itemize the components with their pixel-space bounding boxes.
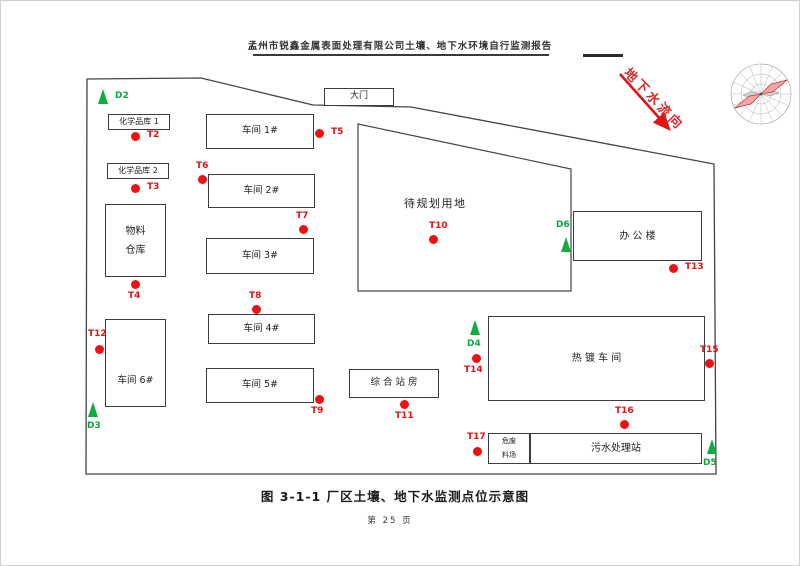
building-label-main-gate: 大门 <box>350 88 368 105</box>
building-label-office-building: 办 公 楼 <box>619 227 655 246</box>
soil-point-label-T13: T13 <box>685 262 704 272</box>
soil-point-dot-T9 <box>315 395 324 404</box>
soil-point-dot-T2 <box>131 132 140 141</box>
building-office-building: 办 公 楼 <box>573 211 702 261</box>
groundwater-point-triangle-icon-D2 <box>98 89 108 104</box>
soil-point-dot-T6 <box>198 175 207 184</box>
soil-point-dot-T15 <box>705 359 714 368</box>
report-page: 孟州市锐鑫金属表面处理有限公司土壤、地下水环境自行监测报告 <box>0 0 800 566</box>
building-label-chem-store-2: 化学品库 2 <box>118 163 158 178</box>
building-workshop-1: 车间 1# <box>206 114 314 149</box>
soil-point-label-T15: T15 <box>700 345 719 355</box>
building-workshop-6: 车间 6# <box>105 319 166 407</box>
soil-point-label-T10: T10 <box>429 221 448 231</box>
groundwater-point-label-D5: D5 <box>703 458 717 468</box>
building-composite-station: 综 合 站 房 <box>349 369 439 398</box>
building-sewage-treatment-station: 污水处理站 <box>530 433 702 464</box>
building-chem-store-2: 化学品库 2 <box>107 163 169 179</box>
soil-point-label-T4: T4 <box>128 291 140 301</box>
building-label-workshop-5: 车间 5# <box>242 376 278 394</box>
building-label-workshop-6: 车间 6# <box>117 372 153 390</box>
groundwater-point-label-D6: D6 <box>556 220 570 230</box>
soil-point-label-T2: T2 <box>147 130 159 140</box>
soil-point-label-T17: T17 <box>467 432 486 442</box>
building-label-workshop-1: 车间 1# <box>242 122 278 140</box>
planned-area-label: 待规划用地 <box>404 195 467 211</box>
soil-point-label-T5: T5 <box>331 127 343 137</box>
building-label-hazardous-waste-yard: 危废 料场 <box>502 435 516 462</box>
soil-point-dot-T12 <box>95 345 104 354</box>
building-label-workshop-2: 车间 2# <box>243 182 279 200</box>
soil-point-label-T7: T7 <box>296 211 308 221</box>
soil-point-dot-T3 <box>131 184 140 193</box>
wind-rose-icon <box>731 64 791 124</box>
building-label-sewage-treatment-station: 污水处理站 <box>591 439 641 458</box>
soil-point-dot-T4 <box>131 280 140 289</box>
soil-point-label-T3: T3 <box>147 182 159 192</box>
groundwater-point-triangle-icon-D4 <box>470 320 480 335</box>
building-galvanizing-workshop: 热 镀 车 间 <box>488 316 705 401</box>
site-plan-drawing <box>1 1 799 565</box>
soil-point-dot-T14 <box>472 354 481 363</box>
building-label-workshop-4: 车间 4# <box>243 320 279 338</box>
figure-caption: 图 3-1-1 厂区土壤、地下水监测点位示意图 <box>1 486 789 505</box>
building-chem-store-1: 化学品库 1 <box>108 114 170 130</box>
building-label-chem-store-1: 化学品库 1 <box>119 114 159 129</box>
groundwater-point-label-D2: D2 <box>115 91 129 101</box>
soil-point-label-T11: T11 <box>395 411 414 421</box>
building-workshop-4: 车间 4# <box>208 314 315 344</box>
groundwater-point-label-D3: D3 <box>87 421 101 431</box>
building-material-warehouse: 物料 仓库 <box>105 204 166 277</box>
soil-point-dot-T13 <box>669 264 678 273</box>
building-main-gate: 大门 <box>324 88 394 106</box>
groundwater-point-triangle-icon-D5 <box>707 439 717 454</box>
building-hazardous-waste-yard: 危废 料场 <box>488 433 530 464</box>
building-label-material-warehouse: 物料 仓库 <box>126 222 146 260</box>
soil-point-label-T8: T8 <box>249 291 261 301</box>
page-number: 第 25 页 <box>1 514 779 526</box>
soil-point-label-T9: T9 <box>311 406 323 416</box>
soil-point-dot-T16 <box>620 420 629 429</box>
soil-point-dot-T8 <box>252 305 261 314</box>
soil-point-label-T12: T12 <box>88 329 107 339</box>
groundwater-point-triangle-icon-D3 <box>88 402 98 417</box>
soil-point-dot-T17 <box>473 447 482 456</box>
soil-point-label-T6: T6 <box>196 161 208 171</box>
building-label-composite-station: 综 合 站 房 <box>370 374 417 392</box>
building-workshop-5: 车间 5# <box>206 368 314 403</box>
soil-point-dot-T10 <box>429 235 438 244</box>
groundwater-point-label-D4: D4 <box>467 339 481 349</box>
soil-point-dot-T5 <box>315 129 324 138</box>
building-label-galvanizing-workshop: 热 镀 车 间 <box>572 349 622 368</box>
soil-point-label-T14: T14 <box>464 365 483 375</box>
building-workshop-2: 车间 2# <box>208 174 315 208</box>
building-workshop-3: 车间 3# <box>206 238 314 274</box>
groundwater-point-triangle-icon-D6 <box>561 237 571 252</box>
soil-point-dot-T7 <box>299 225 308 234</box>
soil-point-label-T16: T16 <box>615 406 634 416</box>
building-label-workshop-3: 车间 3# <box>242 247 278 265</box>
soil-point-dot-T11 <box>400 400 409 409</box>
